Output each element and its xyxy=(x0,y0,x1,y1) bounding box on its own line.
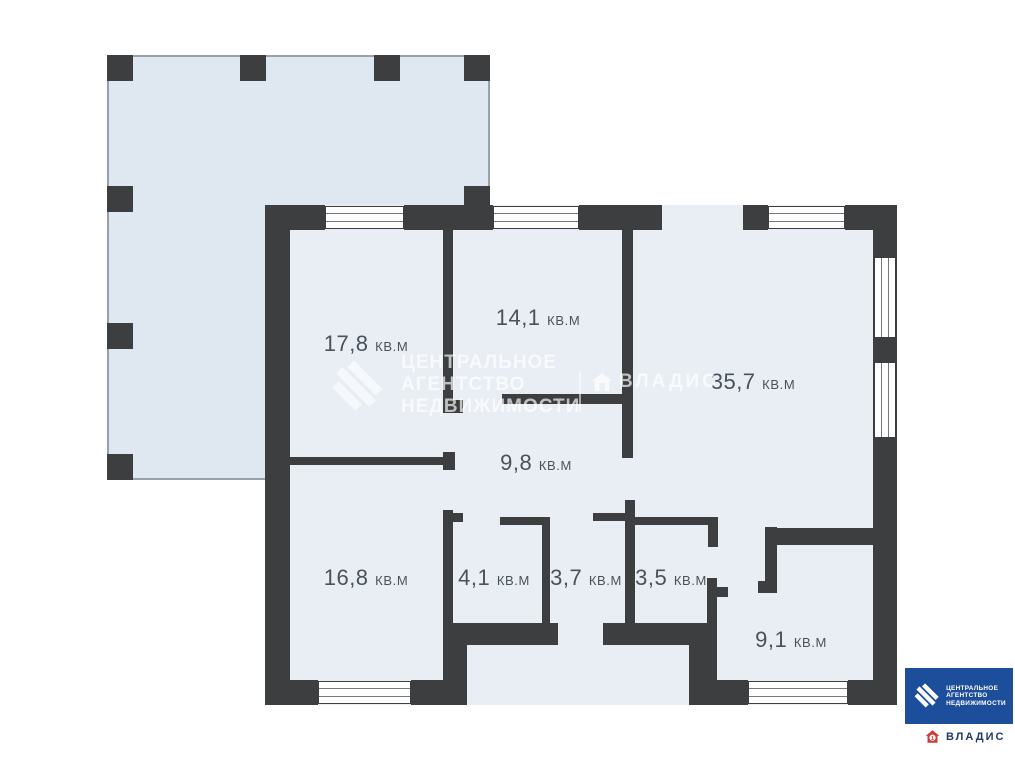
room-label-14-1: 14,1 кв.м xyxy=(496,305,581,331)
wall xyxy=(500,517,550,525)
window xyxy=(748,681,848,704)
wall xyxy=(288,457,445,465)
wall xyxy=(443,623,467,682)
wall xyxy=(848,680,897,705)
terrace-pillar xyxy=(107,186,133,212)
wall xyxy=(708,517,718,547)
agency-logo-watermark-icon xyxy=(325,358,387,416)
terrace-pillar xyxy=(374,55,400,81)
window xyxy=(874,362,896,438)
wall xyxy=(411,680,467,705)
agency-logo-line: ЦЕНТРАЛЬНОЕ xyxy=(946,685,1006,693)
wall xyxy=(265,680,318,705)
watermark-agency-line: АГЕНТСТВО xyxy=(401,374,580,396)
house-icon xyxy=(591,372,613,392)
wall xyxy=(579,205,662,230)
terrace-pillar xyxy=(464,55,490,81)
agency-logo-line: АГЕНТСТВО xyxy=(946,692,1006,700)
wall xyxy=(265,205,290,705)
watermark-vladis: ВЛАДИС xyxy=(591,371,719,393)
wall xyxy=(689,680,748,705)
vladis-house-icon: 1 xyxy=(925,729,940,744)
room-label-35-7: 35,7 кв.м xyxy=(711,369,796,395)
svg-text:1: 1 xyxy=(931,736,934,742)
room-label-16-8: 16,8 кв.м xyxy=(324,565,409,591)
wall xyxy=(707,578,717,623)
wall xyxy=(453,623,558,645)
wall xyxy=(453,513,463,522)
room-label-9-1: 9,1 кв.м xyxy=(755,627,827,653)
window xyxy=(325,206,404,229)
wall xyxy=(772,528,897,545)
agency-logo-icon xyxy=(912,682,940,710)
window xyxy=(874,257,896,338)
window xyxy=(318,681,411,704)
wall xyxy=(689,623,717,682)
terrace-pillar xyxy=(240,55,266,81)
wall xyxy=(404,205,493,230)
wall xyxy=(743,205,768,230)
wall xyxy=(542,525,550,623)
wall xyxy=(758,581,777,593)
floor-plan: 17,8 кв.м 14,1 кв.м 35,7 кв.м 9,8 кв.м 1… xyxy=(0,0,1015,768)
vladis-logo: 1 ВЛАДИС xyxy=(925,729,1005,744)
wall xyxy=(603,623,692,645)
terrace-pillar xyxy=(107,323,133,349)
watermark-divider xyxy=(579,372,581,412)
watermark-agency-line: ЦЕНТРАЛЬНОЕ xyxy=(401,352,580,374)
agency-logo: ЦЕНТРАЛЬНОЕ АГЕНТСТВО НЕДВИЖИМОСТИ xyxy=(905,668,1013,724)
room-label-9-8: 9,8 кв.м xyxy=(500,450,572,476)
room-label-4-1: 4,1 кв.м xyxy=(458,565,530,591)
room-label-3-7: 3,7 кв.м xyxy=(550,565,622,591)
terrace-pillar xyxy=(107,454,133,480)
room-label-3-5: 3,5 кв.м xyxy=(635,565,707,591)
wall xyxy=(622,230,633,458)
wall xyxy=(635,517,718,525)
window xyxy=(493,206,579,229)
wall xyxy=(625,500,635,623)
agency-logo-line: НЕДВИЖИМОСТИ xyxy=(946,700,1006,708)
wall xyxy=(717,587,728,597)
terrace-pillar xyxy=(107,55,133,81)
watermark-agency: ЦЕНТРАЛЬНОЕ АГЕНТСТВО НЕДВИЖИМОСТИ xyxy=(325,352,580,418)
wall xyxy=(443,510,453,623)
wall xyxy=(593,513,625,521)
watermark-agency-line: НЕДВИЖИМОСТИ xyxy=(401,396,580,418)
window xyxy=(768,206,845,229)
